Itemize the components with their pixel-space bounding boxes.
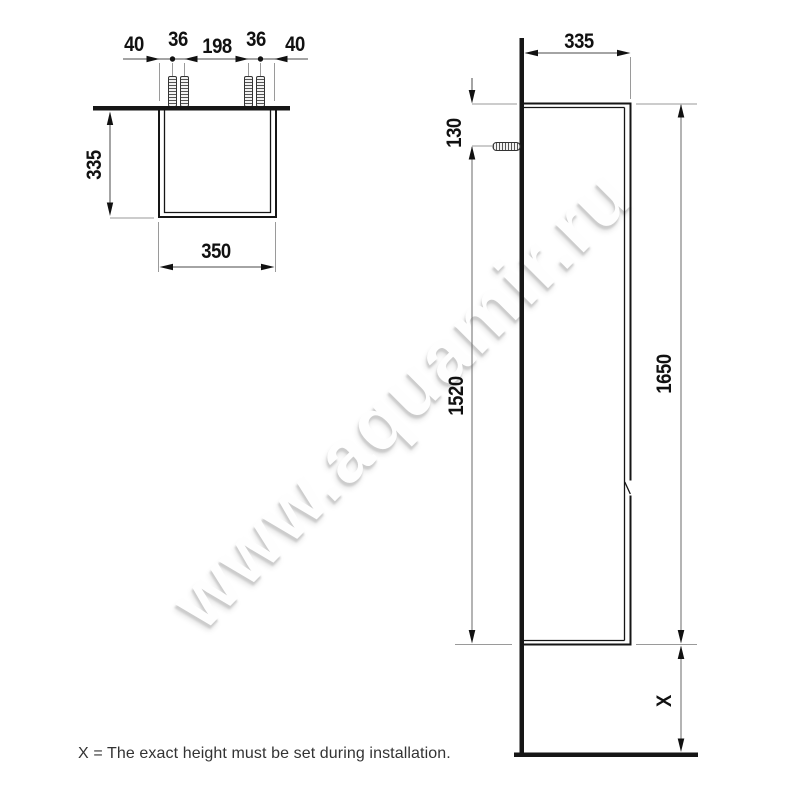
- dim-label-x: X: [653, 695, 677, 707]
- cabinet-profile: [524, 103, 632, 645]
- technical-drawing-page: www.aquamir.ru: [0, 0, 800, 800]
- dim-label-335-top: 335: [83, 150, 107, 180]
- screw-icon: [245, 77, 253, 107]
- dim-label-36-right: 36: [246, 28, 266, 52]
- screw-icon: [181, 77, 189, 107]
- cabinet-dimension-drawing: [0, 0, 800, 800]
- dim-label-130: 130: [443, 118, 467, 148]
- dim-label-1650: 1650: [653, 354, 677, 393]
- dim-label-350: 350: [201, 240, 231, 264]
- wall-screw-icon: [493, 143, 520, 151]
- installation-note: X = The exact height must be set during …: [78, 745, 451, 763]
- screw-icon: [257, 77, 265, 107]
- carcass-outer: [159, 111, 276, 218]
- tabletop-line: [93, 106, 290, 111]
- door-handle-notch: [625, 482, 631, 494]
- dim-label-1520: 1520: [445, 376, 469, 415]
- dim-label-36-left: 36: [168, 28, 188, 52]
- dim-label-40-right: 40: [285, 33, 305, 57]
- dim-label-40-left: 40: [124, 33, 144, 57]
- mounting-screws-top: [169, 77, 265, 107]
- dim-label-198: 198: [202, 35, 232, 59]
- floor-line: [514, 753, 698, 758]
- screw-icon: [169, 77, 177, 107]
- side-view: [455, 38, 698, 757]
- side-view-extension-lines: [455, 57, 697, 645]
- dim-label-335-side: 335: [564, 30, 594, 54]
